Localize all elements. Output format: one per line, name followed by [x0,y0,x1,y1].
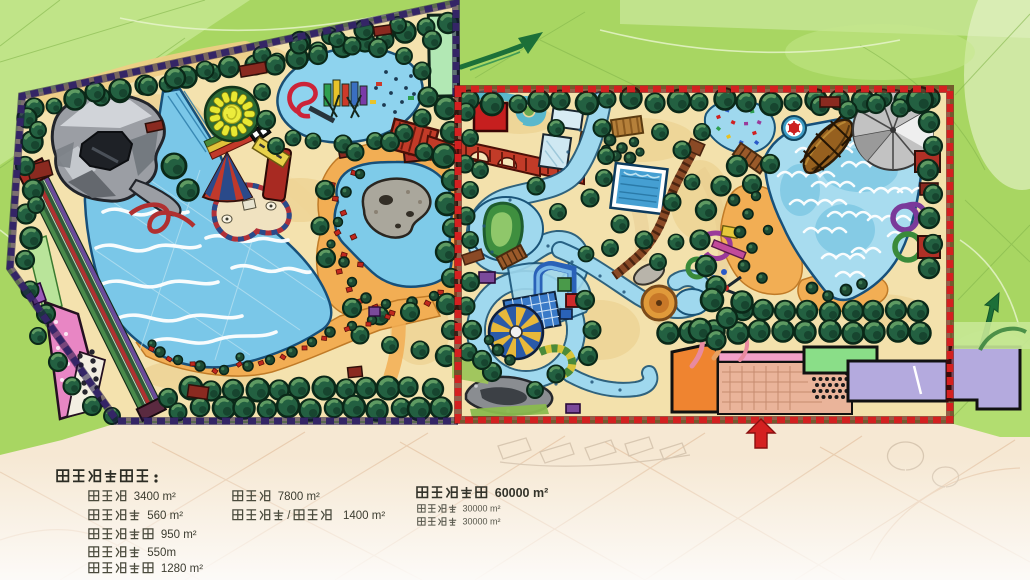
svg-text:560 m²: 560 m² [147,510,183,522]
svg-text:7800 m²: 7800 m² [278,491,320,503]
svg-text:550m: 550m [147,547,176,559]
svg-text:30000 m²: 30000 m² [463,504,501,514]
svg-text:1400 m²: 1400 m² [343,510,385,522]
svg-text:950 m²: 950 m² [161,529,197,541]
svg-text:3400 m²: 3400 m² [134,491,176,503]
svg-text:1280 m²: 1280 m² [161,563,203,575]
svg-text:60000 m²: 60000 m² [495,486,549,500]
svg-text:30000 m²: 30000 m² [463,517,501,527]
